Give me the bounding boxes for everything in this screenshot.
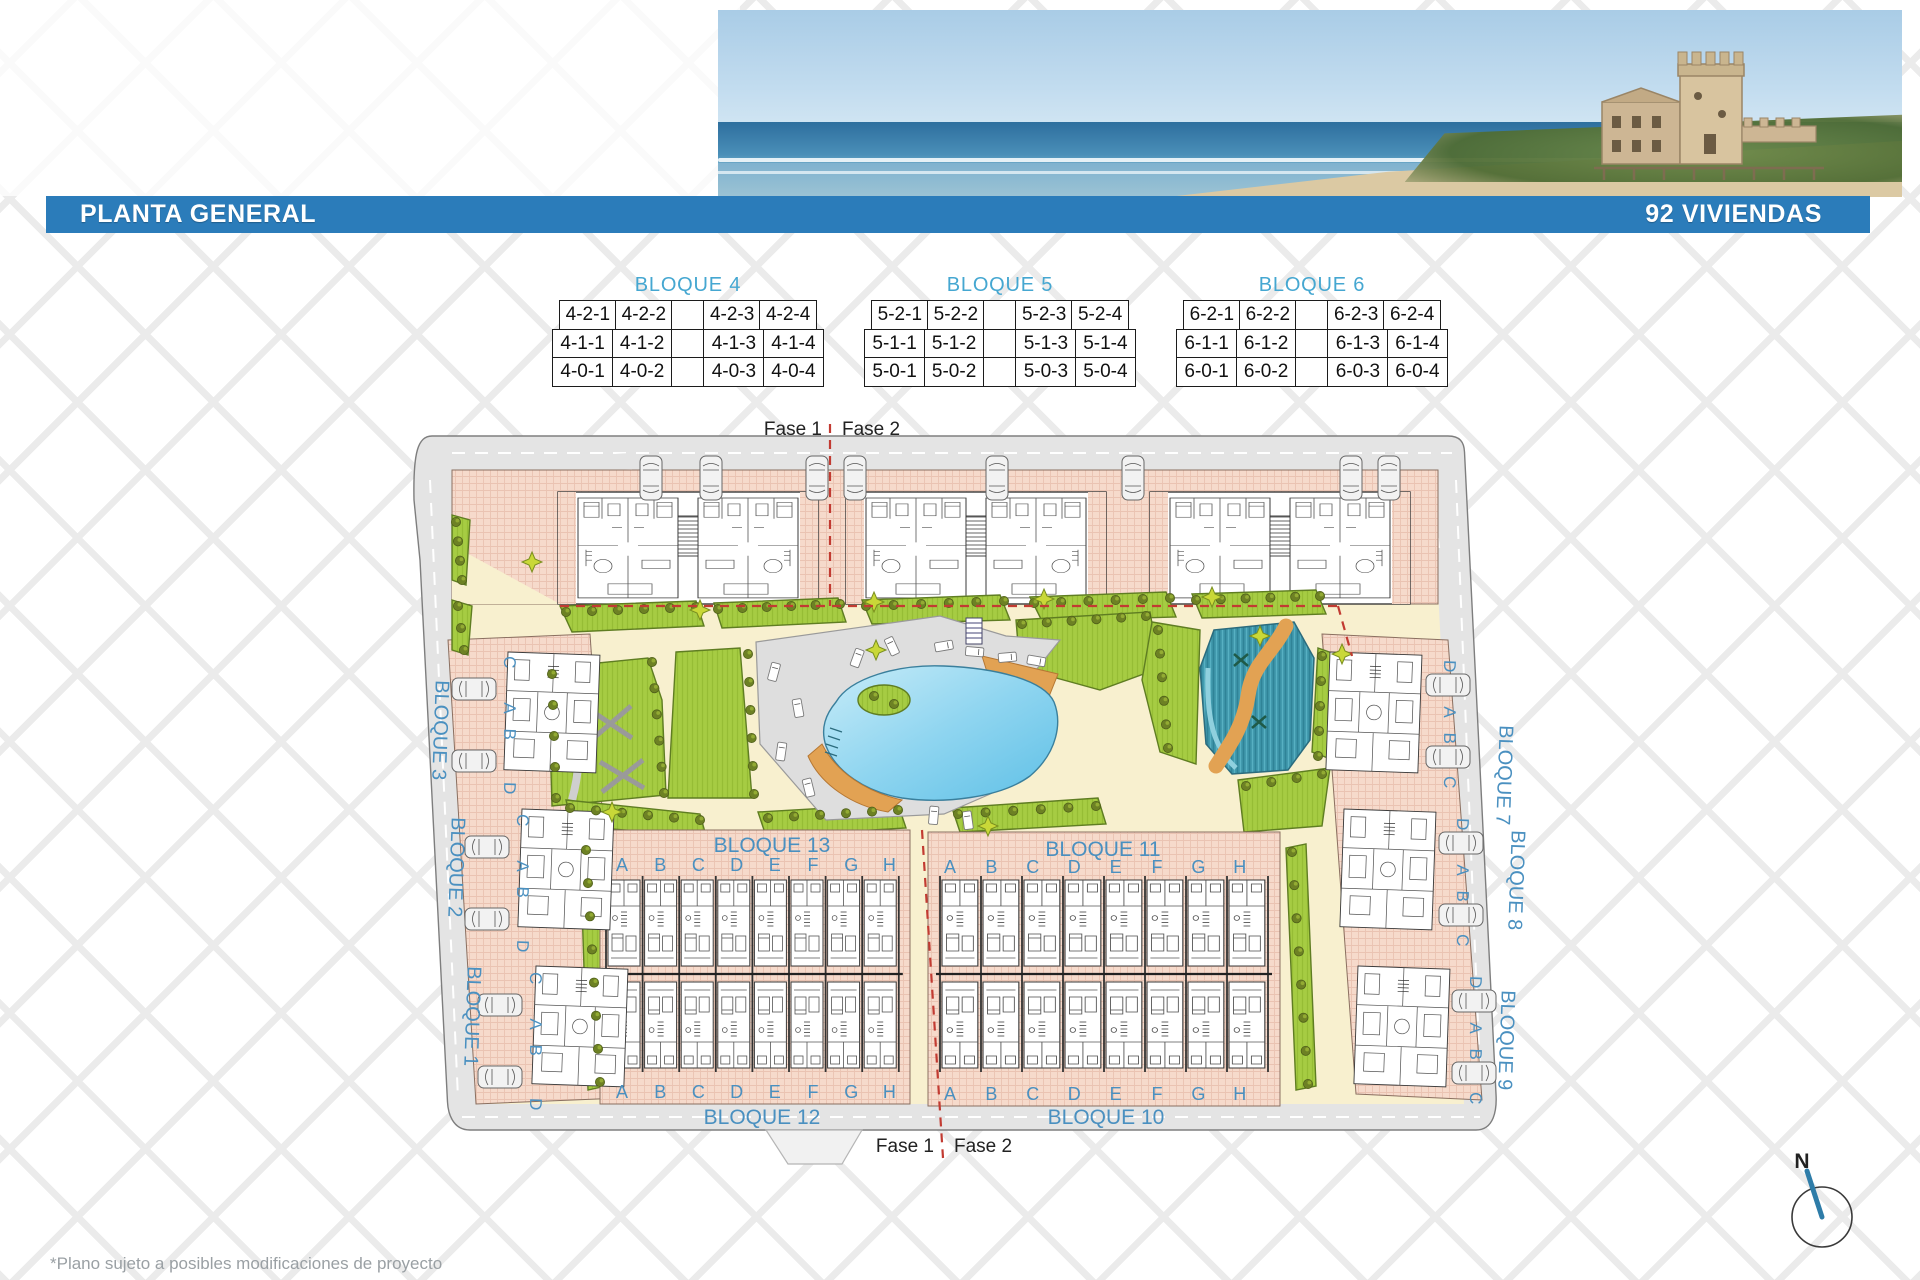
site-plan: BLOQUE 3BLOQUE 2BLOQUE 1BLOQUE 7BLOQUE 8… [0,0,1920,1280]
bottom-strip-right [928,832,1280,1106]
cluster-unit-letter: B [1466,1048,1485,1060]
top-apartment-strip [452,470,1438,604]
strip-unit-letter: H [1233,857,1246,877]
footer-note: *Plano sujeto a posibles modificaciones … [50,1254,442,1274]
cluster-unit-letter: B [1440,732,1459,744]
strip-unit-letter: A [944,857,956,877]
lazy-river-area [1200,622,1314,774]
plan-label-bloque-8: BLOQUE 8 [1503,830,1528,931]
strip-unit-letter: H [883,1082,896,1102]
strip-unit-letter: B [985,1084,997,1104]
cluster-unit-letter: A [526,1018,545,1031]
strip-unit-letter: D [730,1082,743,1102]
cluster-unit-letter: C [1440,776,1459,789]
plan-label-bloque-1: BLOQUE 1 [459,966,484,1067]
strip-unit-letter: G [844,855,858,875]
strip-unit-letter: F [808,855,819,875]
bottom-strip-left [600,830,910,1104]
strip-unit-letter: C [1026,1084,1039,1104]
cluster-unit-letter: C [1453,934,1472,947]
main-pool [824,666,1058,800]
strip-unit-letter: C [692,855,705,875]
service-ramp [766,1130,862,1164]
strip-unit-letter: F [808,1082,819,1102]
plan-label-bloque-13: BLOQUE 13 [714,834,831,857]
cluster-unit-letter: A [1466,1022,1485,1035]
cluster-unit-letter: D [1440,660,1459,673]
cluster-unit-letter: A [1440,706,1459,719]
cluster-unit-letter: A [500,702,519,715]
strip-unit-letter: E [769,1082,781,1102]
pool-stairs-icon [966,618,982,644]
strip-unit-letter: A [616,855,628,875]
cluster-unit-letter: D [526,1098,545,1111]
cluster-unit-letter: D [513,940,532,953]
plan-label-bloque-11: BLOQUE 11 [1045,838,1160,861]
cluster-unit-letter: D [1466,976,1485,989]
compass-north-label: N [1794,1150,1809,1173]
strip-unit-letter: C [1026,857,1039,877]
phase-label-fase2-bottom: Fase 2 [954,1136,1012,1157]
phase-label-fase1-top: Fase 1 [764,419,822,440]
cluster-unit-letter: C [500,656,519,669]
strip-unit-letter: E [769,855,781,875]
cluster-unit-letter: B [513,886,532,898]
plan-label-bloque-2: BLOQUE 2 [443,817,468,918]
strip-unit-letter: B [985,857,997,877]
cluster-unit-letter: D [1453,818,1472,831]
strip-unit-letter: C [692,1082,705,1102]
strip-unit-letter: D [730,855,743,875]
compass [1792,1171,1852,1247]
strip-unit-letter: G [1191,857,1205,877]
plan-label-bloque-3: BLOQUE 3 [427,680,452,781]
cluster-unit-letter: C [526,972,545,985]
plan-label-bloque-7: BLOQUE 7 [1491,725,1516,826]
pool-island [858,685,910,715]
plan-label-bloque-10: BLOQUE 10 [1048,1106,1165,1129]
strip-unit-letter: G [1191,1084,1205,1104]
cluster-unit-letter: B [1453,890,1472,902]
page: PLANTA GENERAL 92 VIVIENDAS BLOQUE 44-2-… [0,0,1920,1280]
strip-unit-letter: D [1068,1084,1081,1104]
strip-unit-letter: A [616,1082,628,1102]
cluster-unit-letter: D [500,782,519,795]
strip-unit-letter: G [844,1082,858,1102]
strip-unit-letter: B [654,855,666,875]
strip-unit-letter: B [654,1082,666,1102]
strip-unit-letter: H [1233,1084,1246,1104]
cluster-unit-letter: B [500,728,519,740]
phase-label-fase1-bottom: Fase 1 [876,1136,934,1157]
phase-label-fase2-top: Fase 2 [842,419,900,440]
cluster-unit-letter: B [526,1044,545,1056]
cluster-unit-letter: A [513,860,532,873]
strip-unit-letter: H [883,855,896,875]
plan-label-bloque-12: BLOQUE 12 [704,1106,821,1129]
plan-label-bloque-9: BLOQUE 9 [1493,990,1518,1091]
compass-needle-icon [1807,1171,1822,1217]
cluster-unit-letter: A [1453,864,1472,877]
strip-unit-letter: F [1152,1084,1163,1104]
cluster-unit-letter: C [1466,1092,1485,1105]
strip-unit-letter: E [1110,1084,1122,1104]
strip-unit-letter: A [944,1084,956,1104]
cluster-unit-letter: C [513,814,532,827]
